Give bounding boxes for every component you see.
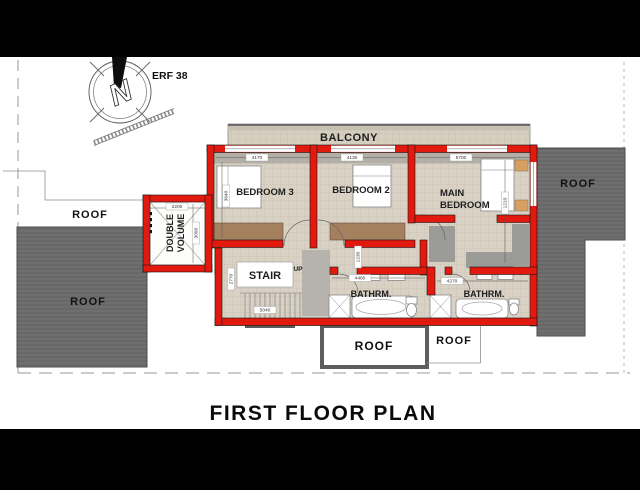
stair-label: STAIR <box>249 270 281 282</box>
bathroom-right-label: BATHRM. <box>464 289 505 299</box>
dim-main-bedroom-width: 5700 <box>456 155 467 161</box>
double-volume-label-line1: DOUBLE <box>165 214 175 252</box>
page-title: FIRST FLOOR PLAN <box>210 402 437 425</box>
roof-right-label: ROOF <box>560 178 596 190</box>
erf-number-label: ERF 38 <box>152 70 188 82</box>
bedroom3-label: BEDROOM 3 <box>236 187 294 198</box>
bedroom2-label: BEDROOM 2 <box>332 185 390 196</box>
roof-left-bottom-label: ROOF <box>70 296 106 308</box>
roof-left-top-label: ROOF <box>72 209 108 221</box>
dim-main-bedroom-depth: 1210 <box>503 197 509 208</box>
main-bedroom-label-line2: BEDROOM <box>440 200 490 211</box>
bottom-letterbox-bar <box>0 429 640 490</box>
bathroom-left-label: BATHRM. <box>351 289 392 299</box>
top-letterbox-bar <box>0 0 640 57</box>
dim-bedroom3-depth: 3640 <box>224 190 230 201</box>
dim-bathroom-left-width: 4460 <box>355 276 366 282</box>
floor-plan-page: N ERF 38 <box>0 0 640 490</box>
dim-stair-width: 5040 <box>260 308 271 314</box>
double-volume-label-line2: VOLUME <box>176 214 186 253</box>
roof-bottom-right-label: ROOF <box>436 335 472 347</box>
dim-stair-depth: 2770 <box>229 273 235 284</box>
dim-bathroom-right-width: 4270 <box>447 279 458 285</box>
main-bedroom-label-line1: MAIN <box>440 188 464 199</box>
dim-double-volume-width: 2200 <box>172 204 183 210</box>
side-table <box>515 160 528 171</box>
dim-passage-width: 1230 <box>356 251 362 262</box>
toilet <box>406 297 417 304</box>
dim-double-volume-depth: 3090 <box>194 227 200 238</box>
side-table <box>515 200 528 211</box>
dim-bedroom2-width: 4130 <box>347 155 358 161</box>
roof-bottom-box-label: ROOF <box>355 339 394 353</box>
floor-plan-drawing: N ERF 38 <box>0 0 640 490</box>
dim-bedroom3-width: 4170 <box>252 155 263 161</box>
balcony-label: BALCONY <box>320 132 378 144</box>
up-label: UP <box>293 266 303 273</box>
